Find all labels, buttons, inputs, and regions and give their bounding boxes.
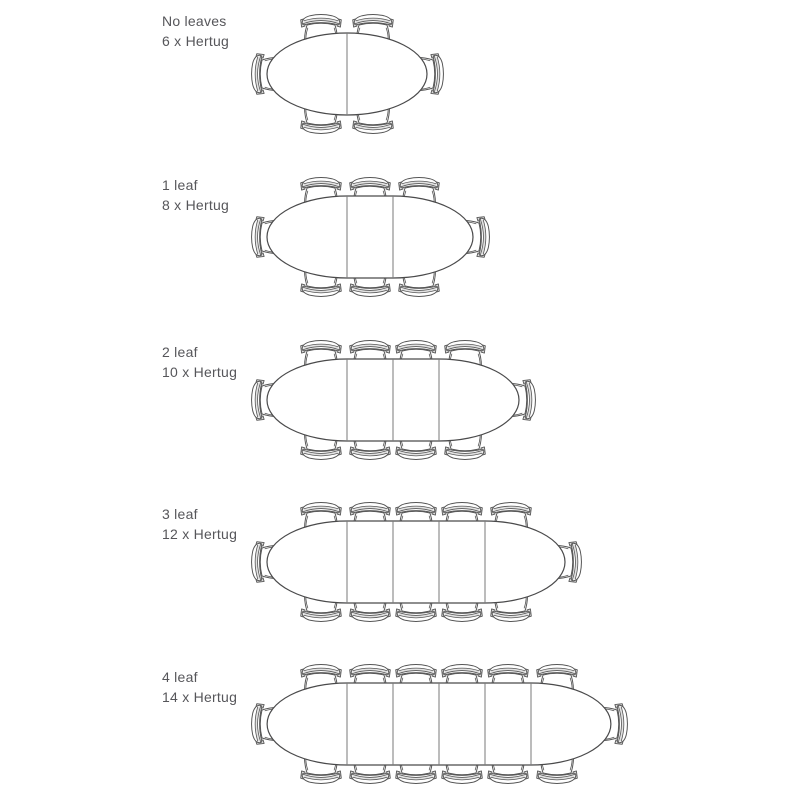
seat-count-label: 12 x Hertug	[162, 525, 237, 545]
table-extension-diagram: No leaves 6 x Hertug 1 leaf 8 x Hertug 2…	[0, 0, 808, 808]
seat-count-label: 10 x Hertug	[162, 363, 237, 383]
table-top	[267, 196, 473, 278]
page: { "chair_model": "Hertug", "colors": { "…	[0, 0, 808, 808]
leaves-count-label: 4 leaf	[162, 668, 237, 688]
leaves-count-label: 1 leaf	[162, 176, 229, 196]
config-label-no-leaves: No leaves 6 x Hertug	[162, 12, 229, 51]
table-configuration-4	[252, 503, 582, 622]
config-label-1-leaf: 1 leaf 8 x Hertug	[162, 176, 229, 215]
seat-count-label: 6 x Hertug	[162, 32, 229, 52]
config-label-4-leaf: 4 leaf 14 x Hertug	[162, 668, 237, 707]
leaves-count-label: No leaves	[162, 12, 229, 32]
leaves-count-label: 3 leaf	[162, 505, 237, 525]
table-configuration-3	[252, 341, 536, 460]
config-label-2-leaf: 2 leaf 10 x Hertug	[162, 343, 237, 382]
config-label-3-leaf: 3 leaf 12 x Hertug	[162, 505, 237, 544]
leaves-count-label: 2 leaf	[162, 343, 237, 363]
table-configuration-5	[252, 665, 628, 784]
table-top	[267, 521, 565, 603]
table-configuration-2	[252, 178, 490, 297]
diagram-svg	[0, 0, 808, 808]
table-configuration-1	[252, 15, 444, 134]
seat-count-label: 14 x Hertug	[162, 688, 237, 708]
seat-count-label: 8 x Hertug	[162, 196, 229, 216]
